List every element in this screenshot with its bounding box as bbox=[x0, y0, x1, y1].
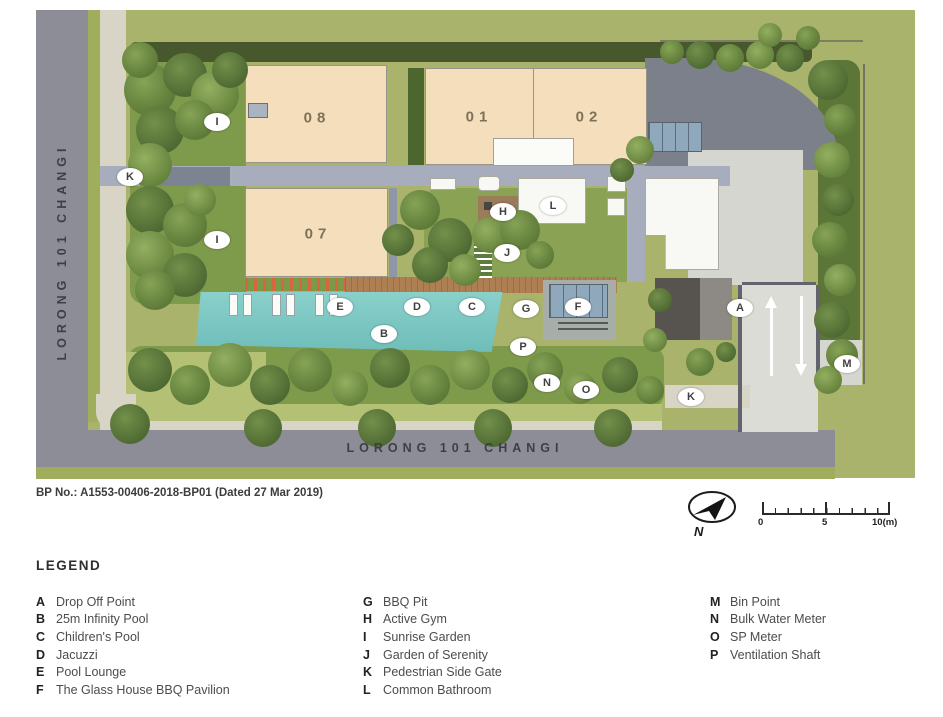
legend-letter: I bbox=[363, 630, 383, 644]
tree bbox=[450, 350, 490, 390]
lounge-chair bbox=[286, 294, 295, 316]
marker-l: L bbox=[540, 197, 566, 215]
legend-title: LEGEND bbox=[36, 558, 101, 573]
marker-n: N bbox=[534, 374, 560, 392]
lobby bbox=[493, 138, 574, 166]
legend-label: Common Bathroom bbox=[383, 683, 491, 697]
legend-item-d: DJacuzzi bbox=[36, 646, 230, 664]
legend-column-1: ADrop Off PointB25m Infinity PoolCChildr… bbox=[36, 593, 230, 699]
legend-letter: G bbox=[363, 595, 383, 609]
tree bbox=[648, 288, 672, 312]
north-label: N bbox=[694, 524, 703, 539]
marker-k: K bbox=[117, 168, 143, 186]
legend-letter: N bbox=[710, 612, 730, 626]
bench-shelter bbox=[607, 198, 625, 216]
legend-label: Drop Off Point bbox=[56, 595, 135, 609]
tree bbox=[208, 343, 252, 387]
legend-label: Ventilation Shaft bbox=[730, 648, 820, 662]
legend-label: SP Meter bbox=[730, 630, 782, 644]
tree bbox=[332, 370, 368, 406]
legend-label: Active Gym bbox=[383, 612, 447, 626]
legend-letter: L bbox=[363, 683, 383, 697]
building-08-label: 08 bbox=[304, 110, 331, 127]
marker-h: H bbox=[490, 203, 516, 221]
tree bbox=[716, 44, 744, 72]
site-plan-page: 08 01 02 07 LORONG 101 CHANGI LORONG bbox=[0, 0, 943, 717]
road-bottom-label: LORONG 101 CHANGI bbox=[347, 441, 564, 455]
scale-bar bbox=[762, 501, 890, 515]
marker-b: B bbox=[371, 325, 397, 343]
legend-letter: D bbox=[36, 648, 56, 662]
tree bbox=[244, 409, 282, 447]
legend-item-j: JGarden of Serenity bbox=[363, 646, 502, 664]
canopy bbox=[478, 176, 500, 191]
marker-f: F bbox=[565, 298, 591, 316]
tree bbox=[660, 40, 684, 64]
legend-item-i: ISunrise Garden bbox=[363, 628, 502, 646]
legend-item-b: B25m Infinity Pool bbox=[36, 611, 230, 629]
marker-e: E bbox=[327, 298, 353, 316]
marker-g: G bbox=[513, 300, 539, 318]
arrow-up-shaft bbox=[770, 308, 773, 376]
lounge-chair bbox=[229, 294, 238, 316]
tree bbox=[796, 26, 820, 50]
tree bbox=[170, 365, 210, 405]
tree bbox=[184, 184, 216, 216]
tree bbox=[492, 367, 528, 403]
legend-label: Pedestrian Side Gate bbox=[383, 665, 502, 679]
tree bbox=[716, 342, 736, 362]
marker-i: I bbox=[204, 113, 230, 131]
legend-item-c: CChildren's Pool bbox=[36, 628, 230, 646]
verge-bottom bbox=[36, 467, 835, 479]
lounge-chair bbox=[315, 294, 324, 316]
tree bbox=[370, 348, 410, 388]
bench-shelter bbox=[430, 178, 456, 190]
arrow-down-shaft bbox=[800, 296, 803, 364]
me-structure bbox=[648, 122, 702, 152]
boundary-right bbox=[863, 64, 865, 384]
tree bbox=[602, 357, 638, 393]
walkway-vertical bbox=[627, 186, 645, 282]
legend-label: Bin Point bbox=[730, 595, 780, 609]
tree bbox=[449, 254, 481, 286]
tree bbox=[526, 241, 554, 269]
building-02-label: 02 bbox=[576, 109, 603, 126]
legend-item-k: KPedestrian Side Gate bbox=[363, 663, 502, 681]
scale-start: 0 bbox=[758, 517, 763, 528]
tree bbox=[410, 365, 450, 405]
legend-letter: F bbox=[36, 683, 56, 697]
tree bbox=[776, 44, 804, 72]
building-08-balcony bbox=[248, 103, 268, 118]
tree bbox=[382, 224, 414, 256]
legend-item-l: LCommon Bathroom bbox=[363, 681, 502, 699]
green-wall bbox=[408, 68, 424, 165]
tree bbox=[686, 41, 714, 69]
legend-letter: P bbox=[710, 648, 730, 662]
building-01-label: 01 bbox=[466, 109, 493, 126]
tree bbox=[812, 222, 848, 258]
marker-c: C bbox=[459, 298, 485, 316]
legend-label: Children's Pool bbox=[56, 630, 140, 644]
curb-top bbox=[742, 282, 816, 285]
tree bbox=[686, 348, 714, 376]
building-01-02: 01 02 bbox=[425, 68, 647, 165]
legend-letter: E bbox=[36, 665, 56, 679]
building-07: 07 bbox=[245, 188, 388, 277]
marker-a: A bbox=[727, 299, 753, 317]
tree bbox=[412, 247, 448, 283]
tree bbox=[594, 409, 632, 447]
legend-item-o: OSP Meter bbox=[710, 628, 826, 646]
marker-i: I bbox=[204, 231, 230, 249]
tree bbox=[758, 23, 782, 47]
glasshouse-step bbox=[558, 322, 608, 324]
legend-letter: J bbox=[363, 648, 383, 662]
tree bbox=[824, 104, 856, 136]
marker-j: J bbox=[494, 244, 520, 262]
marker-m: M bbox=[834, 355, 860, 373]
glasshouse-step bbox=[558, 328, 608, 330]
road-left-label: LORONG 101 CHANGI bbox=[55, 144, 69, 361]
scale-end: 10(m) bbox=[872, 517, 897, 528]
arrow-up-icon bbox=[765, 296, 777, 308]
legend-item-m: MBin Point bbox=[710, 593, 826, 611]
tree bbox=[808, 60, 848, 100]
tree bbox=[824, 264, 856, 296]
verge-left bbox=[88, 10, 100, 422]
lounge-chair bbox=[243, 294, 252, 316]
entrance-drive bbox=[742, 285, 818, 432]
tree bbox=[626, 136, 654, 164]
legend-label: Bulk Water Meter bbox=[730, 612, 826, 626]
legend-letter: C bbox=[36, 630, 56, 644]
legend-label: The Glass House BBQ Pavilion bbox=[56, 683, 230, 697]
tree bbox=[250, 365, 290, 405]
legend-letter: H bbox=[363, 612, 383, 626]
tree bbox=[212, 52, 248, 88]
tree bbox=[636, 376, 664, 404]
legend-item-f: FThe Glass House BBQ Pavilion bbox=[36, 681, 230, 699]
bp-number-line: BP No.: A1553-00406-2018-BP01 (Dated 27 … bbox=[36, 487, 323, 499]
sidewalk-left bbox=[100, 10, 126, 424]
legend-letter: O bbox=[710, 630, 730, 644]
legend-letter: M bbox=[710, 595, 730, 609]
legend-label: Garden of Serenity bbox=[383, 648, 488, 662]
building-08: 08 bbox=[245, 65, 387, 163]
legend-letter: B bbox=[36, 612, 56, 626]
tree bbox=[822, 184, 854, 216]
legend-item-n: NBulk Water Meter bbox=[710, 611, 826, 629]
tree bbox=[135, 270, 175, 310]
marker-d: D bbox=[404, 298, 430, 316]
legend-item-p: PVentilation Shaft bbox=[710, 646, 826, 664]
tree bbox=[128, 348, 172, 392]
tree bbox=[610, 158, 634, 182]
legend-label: Pool Lounge bbox=[56, 665, 126, 679]
legend-column-3: MBin PointNBulk Water MeterOSP MeterPVen… bbox=[710, 593, 826, 663]
marker-p: P bbox=[510, 338, 536, 356]
marker-o: O bbox=[573, 381, 599, 399]
scale-mid: 5 bbox=[822, 517, 827, 528]
legend-label: 25m Infinity Pool bbox=[56, 612, 148, 626]
marker-k: K bbox=[678, 388, 704, 406]
tree bbox=[814, 302, 850, 338]
building-07-label: 07 bbox=[305, 226, 332, 243]
tree bbox=[814, 142, 850, 178]
legend-item-a: ADrop Off Point bbox=[36, 593, 230, 611]
legend-item-h: HActive Gym bbox=[363, 611, 502, 629]
flower-bed bbox=[245, 278, 345, 291]
legend-item-g: GBBQ Pit bbox=[363, 593, 502, 611]
tree bbox=[110, 404, 150, 444]
legend-label: Sunrise Garden bbox=[383, 630, 471, 644]
tree bbox=[643, 328, 667, 352]
arrow-down-icon bbox=[795, 364, 807, 376]
legend-label: BBQ Pit bbox=[383, 595, 427, 609]
legend-letter: K bbox=[363, 665, 383, 679]
legend-label: Jacuzzi bbox=[56, 648, 98, 662]
legend-column-2: GBBQ PitHActive GymISunrise GardenJGarde… bbox=[363, 593, 502, 699]
lounge-chair bbox=[272, 294, 281, 316]
legend-item-e: EPool Lounge bbox=[36, 663, 230, 681]
legend-letter: A bbox=[36, 595, 56, 609]
tree bbox=[288, 348, 332, 392]
north-arrow-icon bbox=[684, 490, 742, 536]
tree bbox=[122, 42, 158, 78]
